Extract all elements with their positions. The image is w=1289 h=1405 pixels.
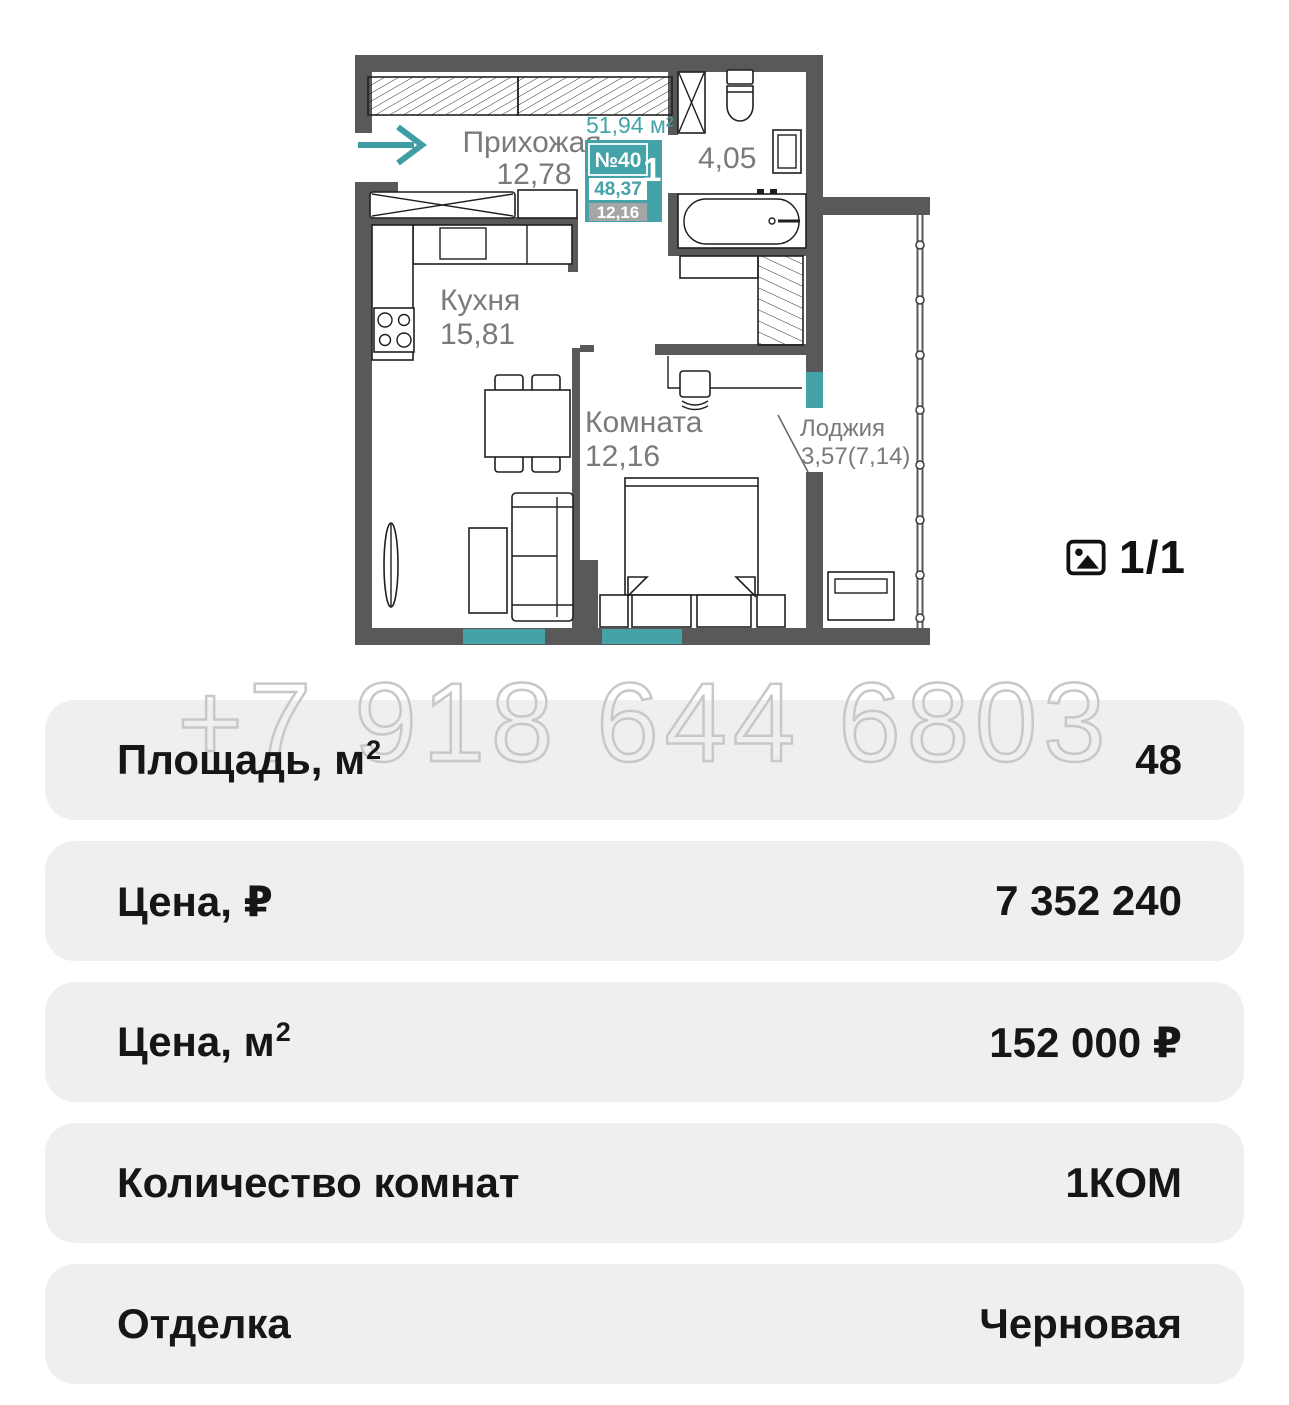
- room-area-room: 12,16: [585, 440, 660, 473]
- row-label-sup: 2: [276, 1017, 291, 1047]
- row-label: Отделка: [117, 1300, 291, 1347]
- washing-machine: [678, 72, 705, 133]
- sofa: [512, 493, 573, 621]
- gallery-counter[interactable]: 1/1: [1066, 530, 1186, 584]
- armchair: [469, 528, 507, 613]
- row-value: 48: [1135, 736, 1182, 784]
- room-label-loggia: Лоджия: [800, 415, 885, 442]
- row-value: 7 352 240: [995, 877, 1182, 925]
- room-area-kitchen: 15,81: [440, 318, 515, 351]
- row-label: Площадь, м: [117, 736, 365, 783]
- gallery-count-label: 1/1: [1119, 530, 1186, 584]
- details-list: Площадь, м2 48 Цена, ₽ 7 352 240 Цена, м…: [45, 700, 1244, 1405]
- total-area-label: 51,94 м²: [586, 112, 674, 138]
- loggia-bench: [828, 572, 894, 620]
- detail-row-price: Цена, ₽ 7 352 240: [45, 841, 1244, 961]
- floor-plan[interactable]: Прихожая 12,78 51,94 м² №40 1к 48,37 12,…: [340, 40, 940, 660]
- row-label: Цена, м: [117, 1018, 275, 1065]
- shoe-bench: [370, 190, 577, 218]
- bathroom-area: 4,05: [698, 142, 756, 175]
- detail-row-rooms: Количество комнат 1КОМ: [45, 1123, 1244, 1243]
- room-label-kitchen: Кухня: [440, 284, 520, 317]
- dining-table: [485, 375, 570, 472]
- image-icon: [1066, 539, 1106, 576]
- room-label-hallway: Прихожая: [462, 126, 601, 159]
- room-label-room: Комната: [585, 406, 703, 439]
- unit-area-total: 48,37: [594, 179, 642, 200]
- detail-row-price-per-m2: Цена, м2 152 000 ₽: [45, 982, 1244, 1102]
- sink: [773, 130, 801, 173]
- window-glazing: [916, 215, 924, 628]
- detail-row-finishing: Отделка Черновая: [45, 1264, 1244, 1384]
- plant: [384, 523, 398, 607]
- unit-rooms-unit: к: [661, 153, 669, 170]
- row-value: Черновая: [979, 1300, 1182, 1348]
- unit-number: №40: [595, 149, 642, 172]
- hallway-closet: [680, 256, 803, 345]
- row-value: 1КОМ: [1065, 1159, 1182, 1207]
- room-area-hallway: 12,78: [496, 158, 571, 191]
- row-label-sup: 2: [366, 735, 381, 765]
- row-label: Цена, ₽: [117, 878, 273, 925]
- room-area-loggia: 3,57(7,14): [801, 443, 910, 470]
- detail-row-area: Площадь, м2 48: [45, 700, 1244, 820]
- bed: [600, 478, 785, 627]
- row-label: Количество комнат: [117, 1159, 519, 1206]
- toilet: [727, 70, 753, 121]
- unit-badge: №40 1к 48,37 12,16: [585, 140, 669, 222]
- unit-area-living: 12,16: [597, 203, 640, 222]
- desk-chair: [668, 356, 802, 410]
- bathtub: [678, 189, 806, 248]
- row-value: 152 000 ₽: [989, 1018, 1182, 1067]
- stove: [374, 308, 414, 352]
- wardrobe-hallway: [368, 77, 672, 115]
